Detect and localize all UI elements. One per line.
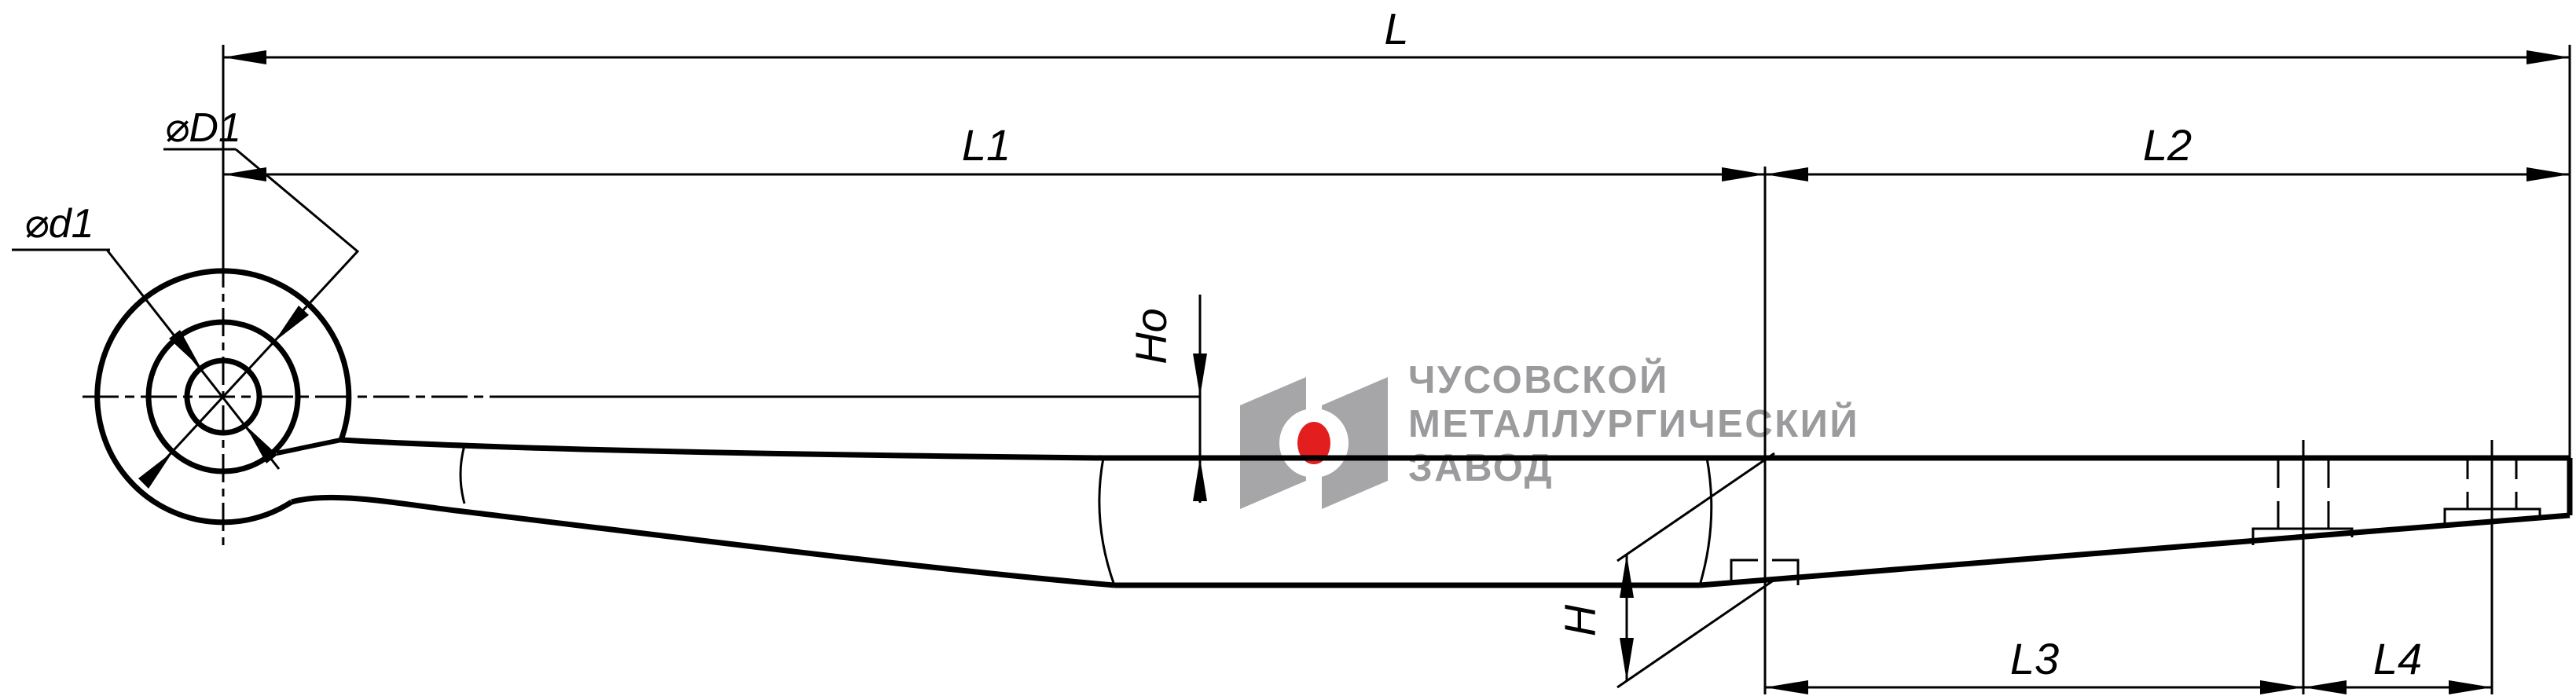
arrow-L4-right [2449, 680, 2492, 694]
dimension-Ho: Ho [1126, 295, 1207, 503]
dimension-L: L [223, 4, 2570, 64]
dimension-H: H [1555, 453, 1774, 687]
dimension-L2: L2 [1765, 120, 2570, 181]
arrow-L4-left [2303, 680, 2347, 694]
chmz-logo: ЧУСОВСКОЙ МЕТАЛЛУРГИЧЕСКИЙ ЗАВОД [1240, 358, 1859, 509]
arrow-H-bottom [1620, 638, 1634, 681]
logo-line-3: ЗАВОД [1408, 447, 1554, 489]
arrow-L1-right [1722, 167, 1765, 181]
leaf-bottom-front [292, 497, 1114, 585]
label-L: L [1384, 4, 1408, 53]
arrow-H-top [1620, 555, 1634, 598]
wrap-end-cut [277, 440, 341, 453]
dimension-L1: L1 [223, 120, 1765, 181]
oblique-ext-top [1617, 453, 1774, 561]
leaf-spring-technical-drawing: ЧУСОВСКОЙ МЕТАЛЛУРГИЧЕСКИЙ ЗАВОД [0, 0, 2576, 696]
label-d1: ⌀d1 [24, 201, 94, 247]
label-L2: L2 [2143, 120, 2192, 170]
arrow-L3-left [1765, 680, 1808, 694]
arrow-L-left [223, 50, 266, 64]
label-D1: ⌀D1 [164, 105, 241, 151]
arrow-D1-upper [274, 306, 309, 342]
label-L3: L3 [2010, 634, 2059, 683]
arrow-L2-left [1765, 167, 1808, 181]
leaf-bottom-taper [1700, 515, 2570, 585]
label-Ho: Ho [1126, 308, 1176, 364]
dimension-L4: L4 [2303, 634, 2492, 694]
chmz-logo-emblem-icon [1240, 377, 1388, 509]
center-section-arc-right [1700, 458, 1712, 585]
label-H: H [1555, 604, 1605, 636]
dimension-L3: L3 [1765, 634, 2303, 694]
logo-line-1: ЧУСОВСКОЙ [1408, 358, 1669, 401]
logo-line-2: МЕТАЛЛУРГИЧЕСКИЙ [1408, 402, 1859, 445]
label-L4: L4 [2373, 634, 2422, 683]
arrow-L3-right [2260, 680, 2303, 694]
chmz-logo-text: ЧУСОВСКОЙ МЕТАЛЛУРГИЧЕСКИЙ ЗАВОД [1408, 358, 1859, 489]
drawing-canvas: ЧУСОВСКОЙ МЕТАЛЛУРГИЧЕСКИЙ ЗАВОД [0, 0, 2576, 696]
extension-lines [83, 45, 2570, 694]
arrow-L2-right [2526, 167, 2570, 181]
arrow-Ho-bottom [1193, 458, 1207, 501]
label-L1: L1 [962, 120, 1011, 170]
oblique-ext-bottom [1617, 580, 1774, 687]
center-section-arc-left [1099, 458, 1114, 585]
arrow-D1-lower [138, 452, 173, 489]
arrow-Ho-top [1193, 353, 1207, 397]
arrow-L-right [2526, 50, 2570, 64]
neck-section-arc [461, 445, 464, 504]
